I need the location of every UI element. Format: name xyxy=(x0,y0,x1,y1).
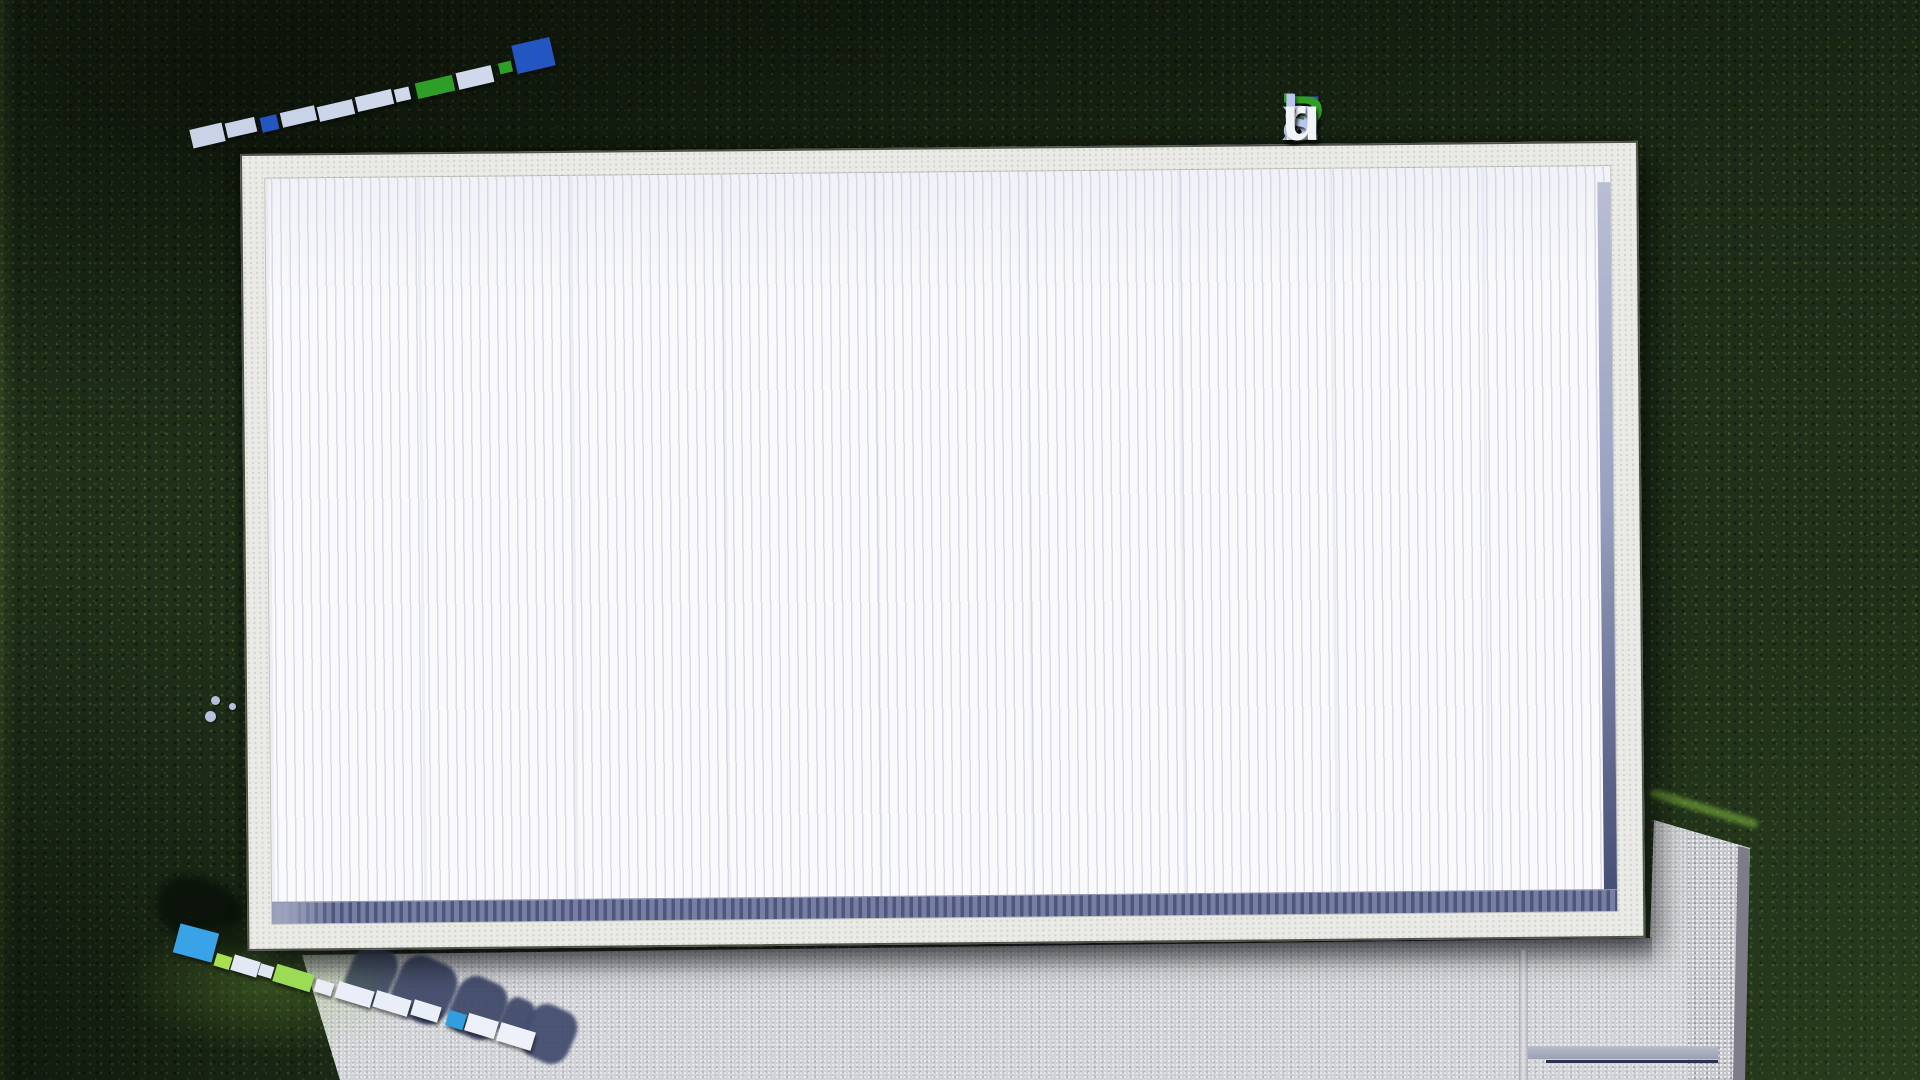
ground-object-dot xyxy=(229,703,236,710)
ground-object-dot xyxy=(211,696,220,705)
paving-joint-line xyxy=(1546,1060,1718,1063)
logo-letter: u xyxy=(1282,88,1318,151)
aerial-render-scene: FıxPlans.ru xyxy=(0,0,1920,1080)
corrugated-roof-sheet xyxy=(265,166,1617,924)
ground-object-dot xyxy=(205,711,216,722)
paving-step-band xyxy=(1528,1046,1718,1059)
building-roof xyxy=(240,141,1645,951)
roof-gutter-band-right xyxy=(1597,182,1617,890)
paving-joint-vertical xyxy=(1519,950,1528,1080)
roof-gutter-band-bottom xyxy=(272,889,1617,924)
